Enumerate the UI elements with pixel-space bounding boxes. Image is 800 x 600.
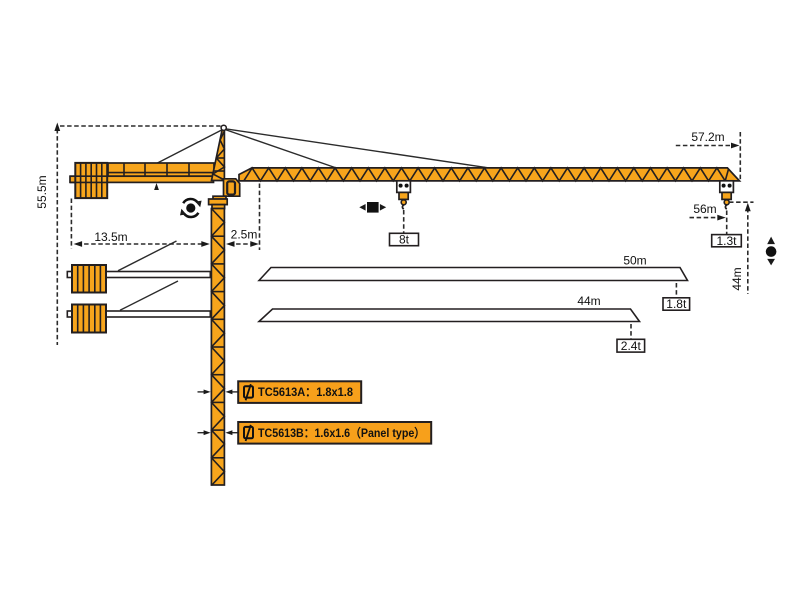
svg-text:44m: 44m [577, 294, 600, 308]
svg-text:55.5m: 55.5m [35, 175, 49, 208]
svg-text:TC5613A：1.8x1.8: TC5613A：1.8x1.8 [258, 385, 353, 399]
svg-text:2.4t: 2.4t [621, 339, 642, 353]
svg-text:44m: 44m [730, 267, 744, 290]
svg-text:56m: 56m [693, 202, 716, 216]
svg-text:8t: 8t [399, 233, 410, 247]
svg-text:1.3t: 1.3t [716, 234, 737, 248]
svg-text:50m: 50m [623, 254, 646, 268]
svg-text:13.5m: 13.5m [94, 230, 127, 244]
svg-text:1.8t: 1.8t [666, 297, 687, 311]
svg-text:57.2m: 57.2m [691, 130, 724, 144]
svg-text:TC5613B：1.6x1.6（Panel type）: TC5613B：1.6x1.6（Panel type） [258, 425, 425, 440]
svg-text:2.5m: 2.5m [231, 228, 258, 242]
